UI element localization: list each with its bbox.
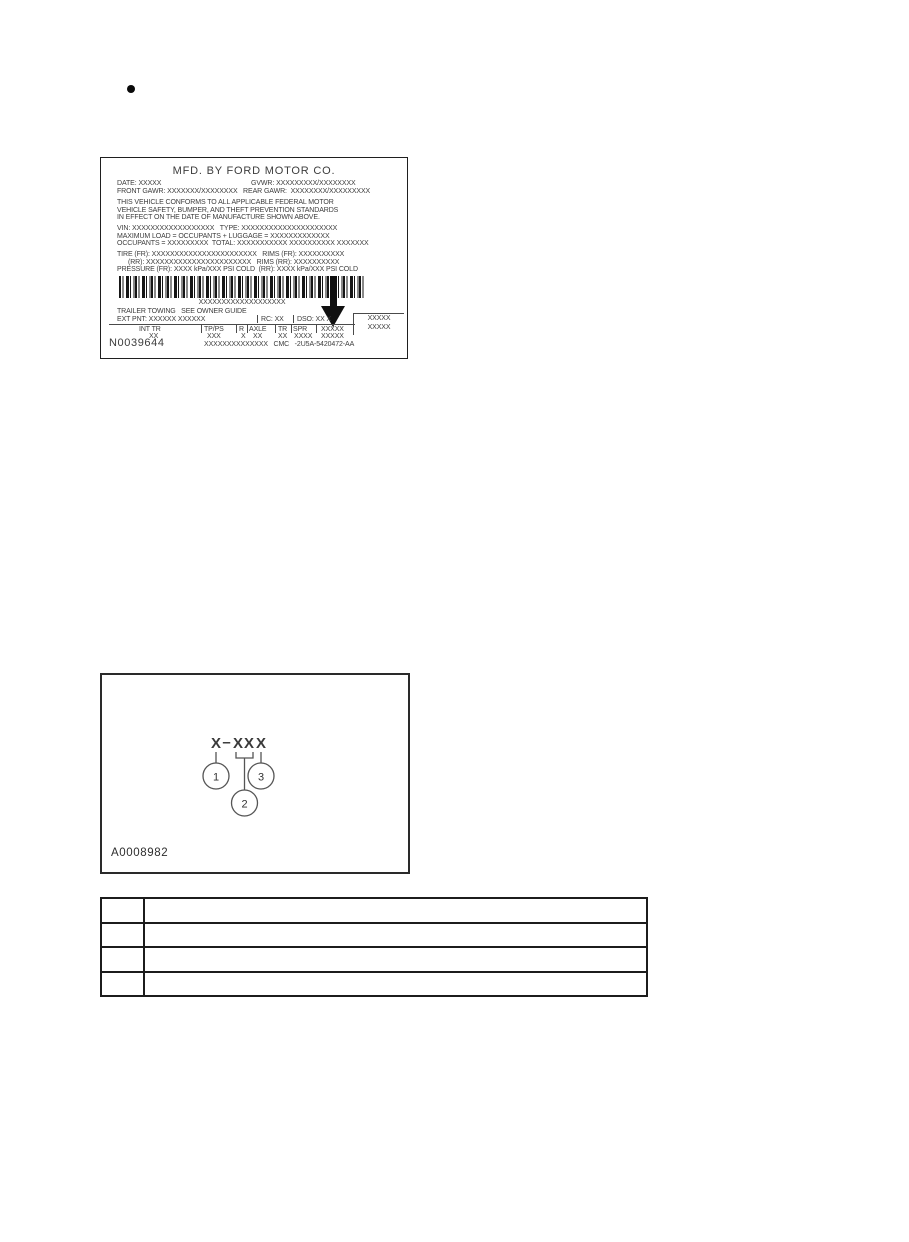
- code-dash: –: [222, 734, 230, 751]
- code-char-3: X: [256, 735, 266, 752]
- barcode-text: XXXXXXXXXXXXXXXXXXX: [119, 299, 365, 307]
- callout-bracket: [236, 752, 253, 758]
- table-cell-description: [144, 898, 647, 923]
- label-title: MFD. BY FORD MOTOR CO.: [101, 165, 407, 177]
- table-cell-number: [101, 898, 144, 923]
- side-box-value: XXXXX: [368, 314, 391, 323]
- callout-number-2: 2: [241, 799, 247, 811]
- label-occupants-line: OCCUPANTS = XXXXXXXXX TOTAL: XXXXXXXXXXX…: [117, 240, 369, 248]
- table-row: [101, 923, 647, 948]
- divider: [316, 325, 317, 333]
- bullet-icon: [127, 85, 135, 93]
- callout-description-table: [100, 897, 648, 997]
- divider: [236, 325, 237, 333]
- divider: [247, 325, 248, 333]
- barcode: [119, 276, 365, 298]
- side-box-value: XXXXX: [368, 323, 391, 332]
- ext-paint-field: EXT PNT: XXXXXX XXXXXX: [117, 316, 205, 324]
- figure-id: A0008982: [111, 847, 168, 859]
- label-part-number-line: XXXXXXXXXXXXXX CMC -2U5A-5420472-AA: [204, 341, 354, 349]
- table-row: [101, 972, 647, 997]
- table-cell-description: [144, 947, 647, 972]
- document-page: { "ink_color": "#3c3c3c", "bullet_glyph"…: [0, 0, 909, 1242]
- table-cell-number: [101, 947, 144, 972]
- divider: [291, 325, 292, 333]
- divider: [257, 315, 258, 323]
- table-cell-number: [101, 923, 144, 948]
- rc-field: RC: XX: [261, 316, 284, 324]
- label-side-box: XXXXX XXXXX: [353, 313, 404, 335]
- label-conformity-line: IN EFFECT ON THE DATE OF MANUFACTURE SHO…: [117, 214, 320, 222]
- label-gawr-line: FRONT GAWR: XXXXXXX/XXXXXXXX REAR GAWR: …: [117, 188, 370, 196]
- code-structure-diagram: X – XX X 1 2 3: [102, 675, 408, 872]
- table-row: [101, 947, 647, 972]
- label-pressure-line: PRESSURE (FR): XXXX kPa/XXX PSI COLD (RR…: [117, 266, 358, 274]
- callout-number-3: 3: [258, 772, 264, 784]
- table-cell-description: [144, 923, 647, 948]
- code-structure-figure: X – XX X 1 2 3 A0008982: [100, 673, 410, 874]
- certification-label-figure: MFD. BY FORD MOTOR CO. DATE: XXXXX GVWR:…: [100, 157, 408, 359]
- table-cell-number: [101, 972, 144, 997]
- divider: [275, 325, 276, 333]
- code-char-2: XX: [233, 735, 255, 752]
- figure-id: N0039644: [109, 337, 165, 349]
- callout-number-1: 1: [213, 772, 219, 784]
- table-cell-description: [144, 972, 647, 997]
- dso-field: DSO: XX X: [297, 316, 331, 324]
- table-row: [101, 898, 647, 923]
- divider: [201, 325, 202, 333]
- divider: [293, 315, 294, 323]
- code-char-1: X: [211, 735, 221, 752]
